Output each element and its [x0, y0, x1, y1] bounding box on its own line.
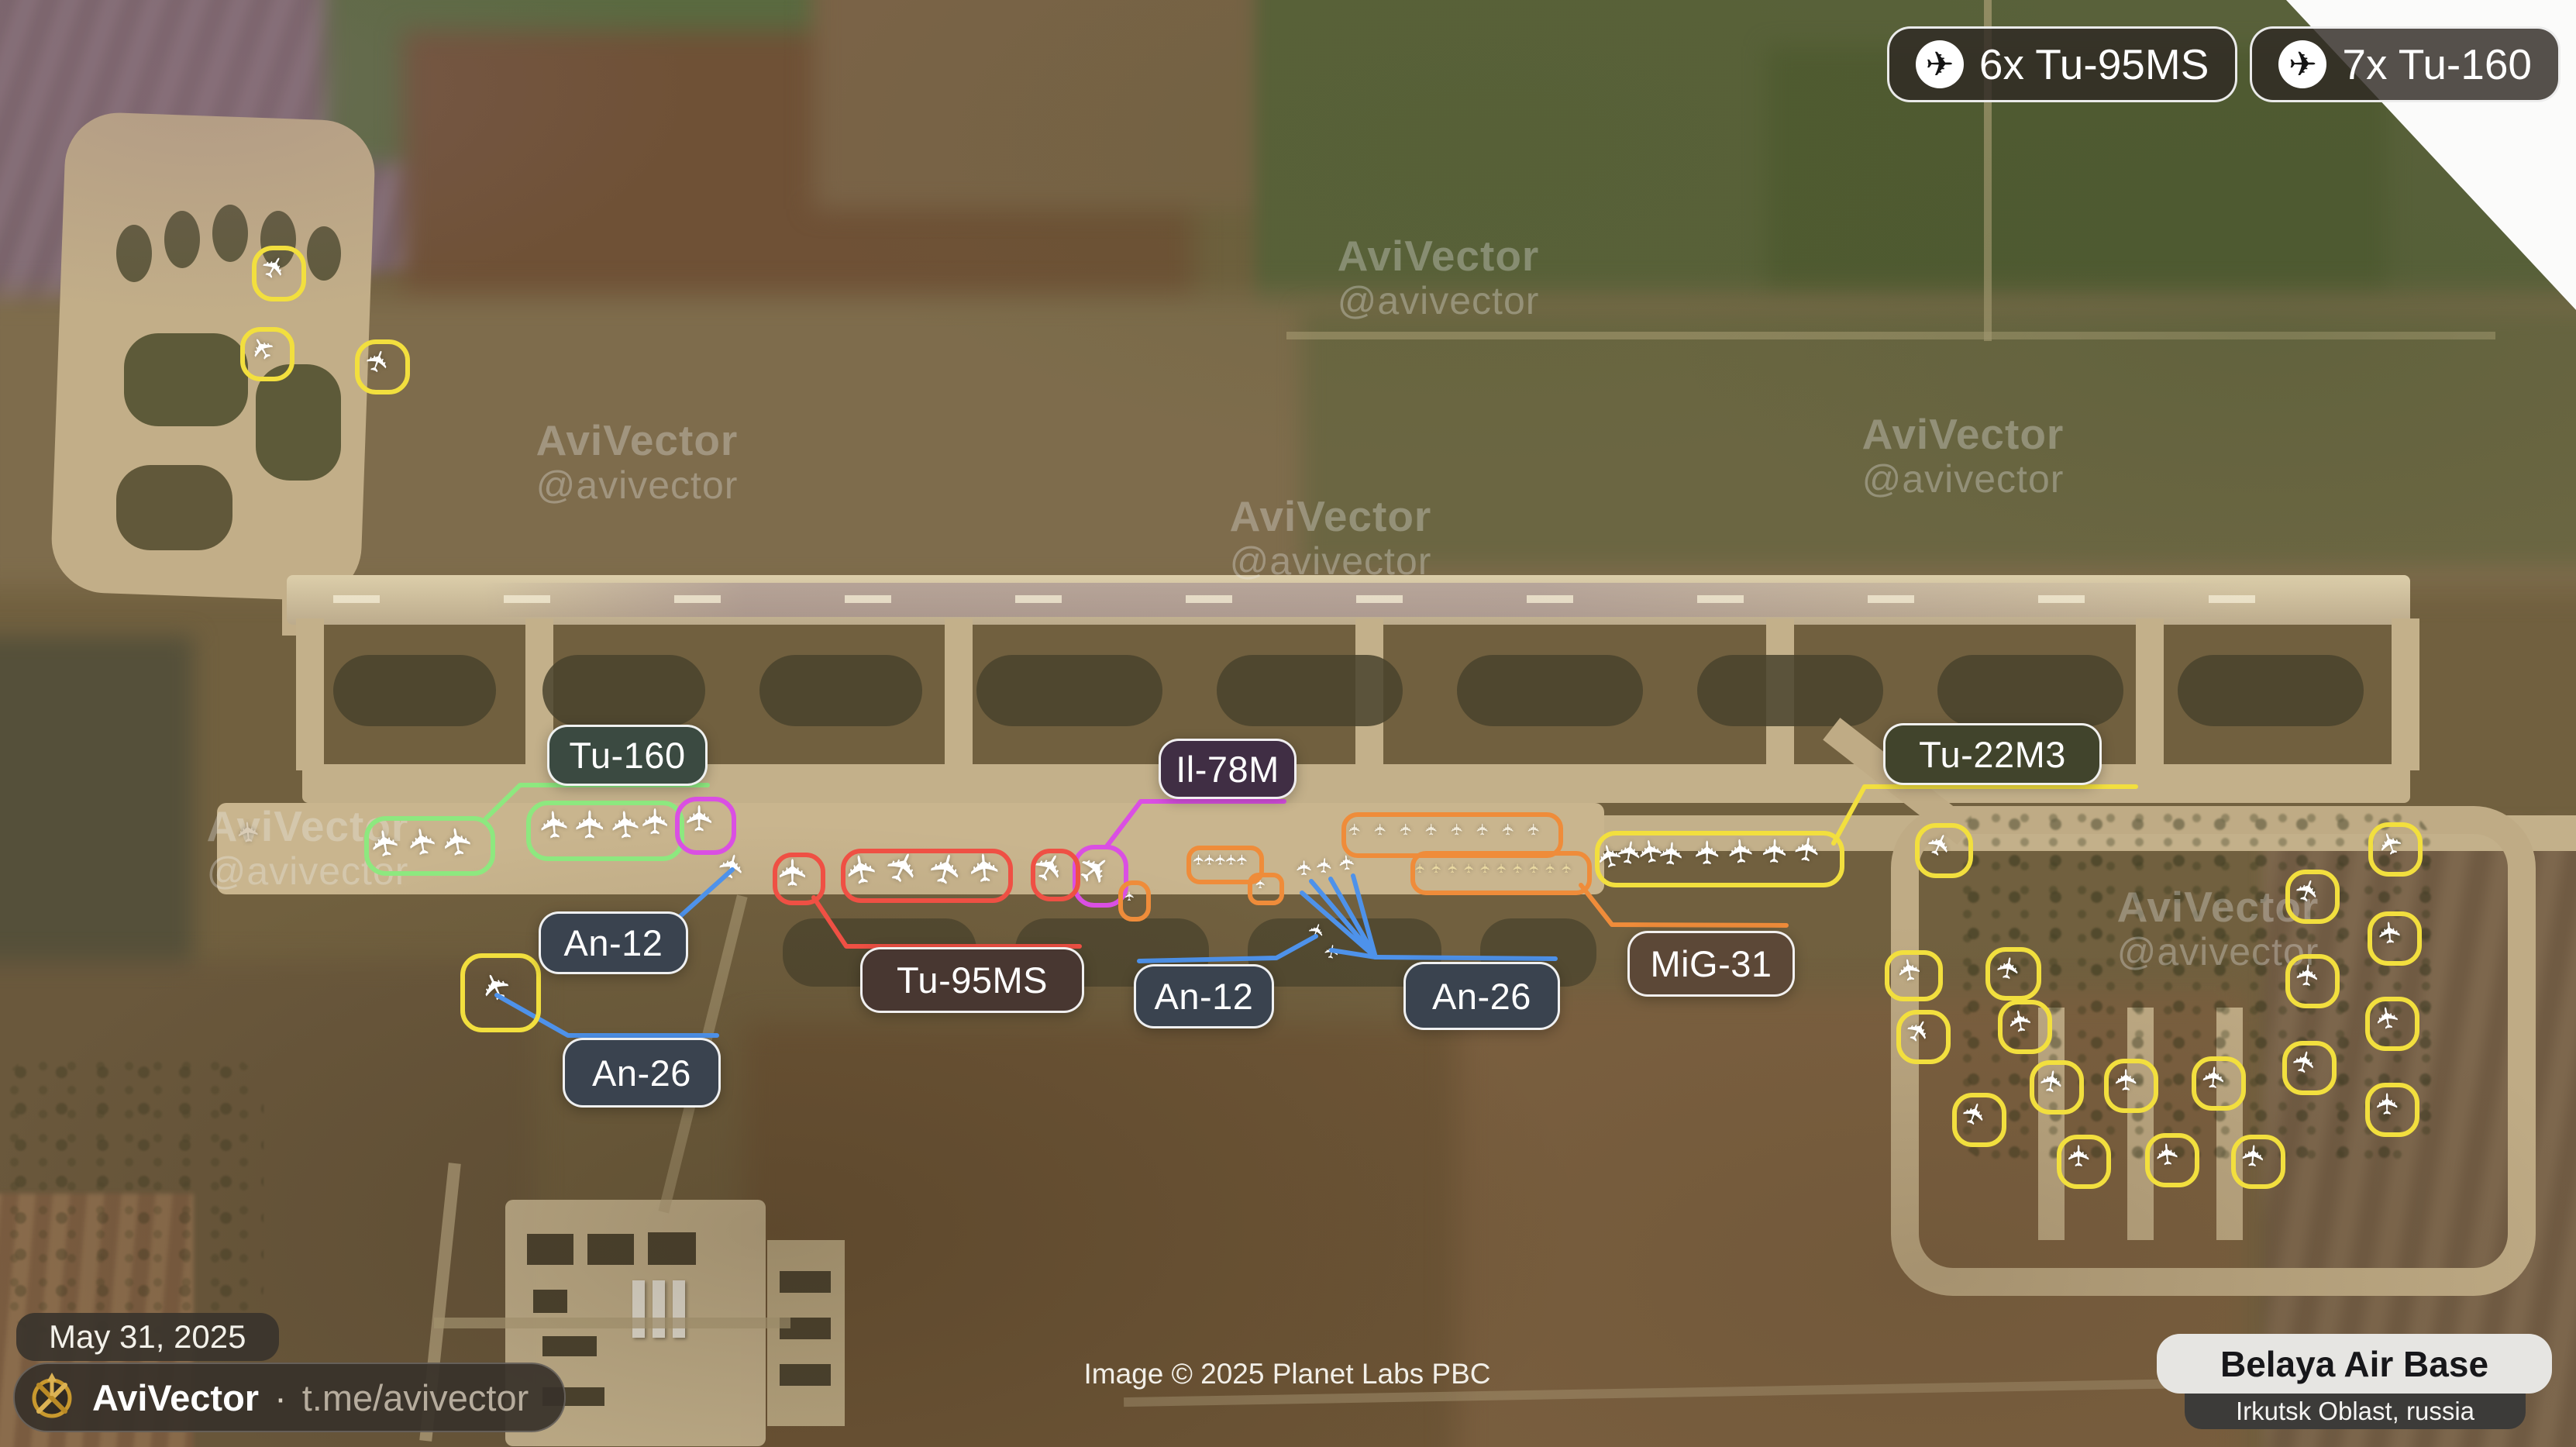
aircraft-label-layer: Tu-160Il-78MTu-22M3An-12Tu-95MSAn-12An-2…: [0, 0, 2576, 1447]
airplane-icon: ✈: [1916, 40, 1964, 88]
aircraft-label-an26-right: An-26: [1403, 962, 1560, 1030]
aircraft-count-badges: ✈6x Tu-95MS✈7x Tu-160: [1887, 26, 2561, 102]
airplane-icon: ✈: [2278, 40, 2326, 88]
aircraft-label-tu22m3: Tu-22M3: [1883, 723, 2102, 785]
aircraft-label-mig31: MiG-31: [1627, 931, 1795, 997]
aircraft-label-an26-left: An-26: [563, 1038, 721, 1108]
base-region-badge: Irkutsk Oblast, russia: [2185, 1394, 2526, 1429]
count-badge-label: 7x Tu-160: [2342, 40, 2532, 89]
capture-date-badge: May 31, 2025: [16, 1313, 279, 1361]
aircraft-label-tu95ms: Tu-95MS: [860, 947, 1084, 1013]
capture-date-text: May 31, 2025: [49, 1318, 246, 1356]
base-name-text: Belaya Air Base: [2220, 1343, 2488, 1385]
base-name-badge: Belaya Air Base: [2157, 1334, 2552, 1394]
aircraft-label-an12-center: An-12: [1134, 964, 1274, 1028]
brand-name: AviVector: [92, 1376, 259, 1419]
telegram-channel-link[interactable]: t.me/avivector: [302, 1376, 529, 1419]
count-badge-tu95ms-count: ✈6x Tu-95MS: [1887, 26, 2238, 102]
aircraft-label-tu160: Tu-160: [547, 725, 708, 786]
avivector-branding: AviVector · t.me/avivector: [13, 1363, 566, 1432]
aircraft-label-an12-left: An-12: [539, 911, 688, 974]
avivector-logo-icon: [27, 1371, 77, 1425]
aircraft-label-il78m: Il-78M: [1159, 739, 1297, 799]
count-badge-label: 6x Tu-95MS: [1979, 40, 2209, 89]
base-region-text: Irkutsk Oblast, russia: [2236, 1397, 2474, 1426]
annotated-satellite-image: AviVector@avivectorAviVector@avivectorAv…: [0, 0, 2576, 1447]
brand-separator: ·: [274, 1376, 287, 1419]
imagery-credit: Image © 2025 Planet Labs PBC: [1083, 1358, 1490, 1390]
count-badge-tu160-count: ✈7x Tu-160: [2250, 26, 2561, 102]
